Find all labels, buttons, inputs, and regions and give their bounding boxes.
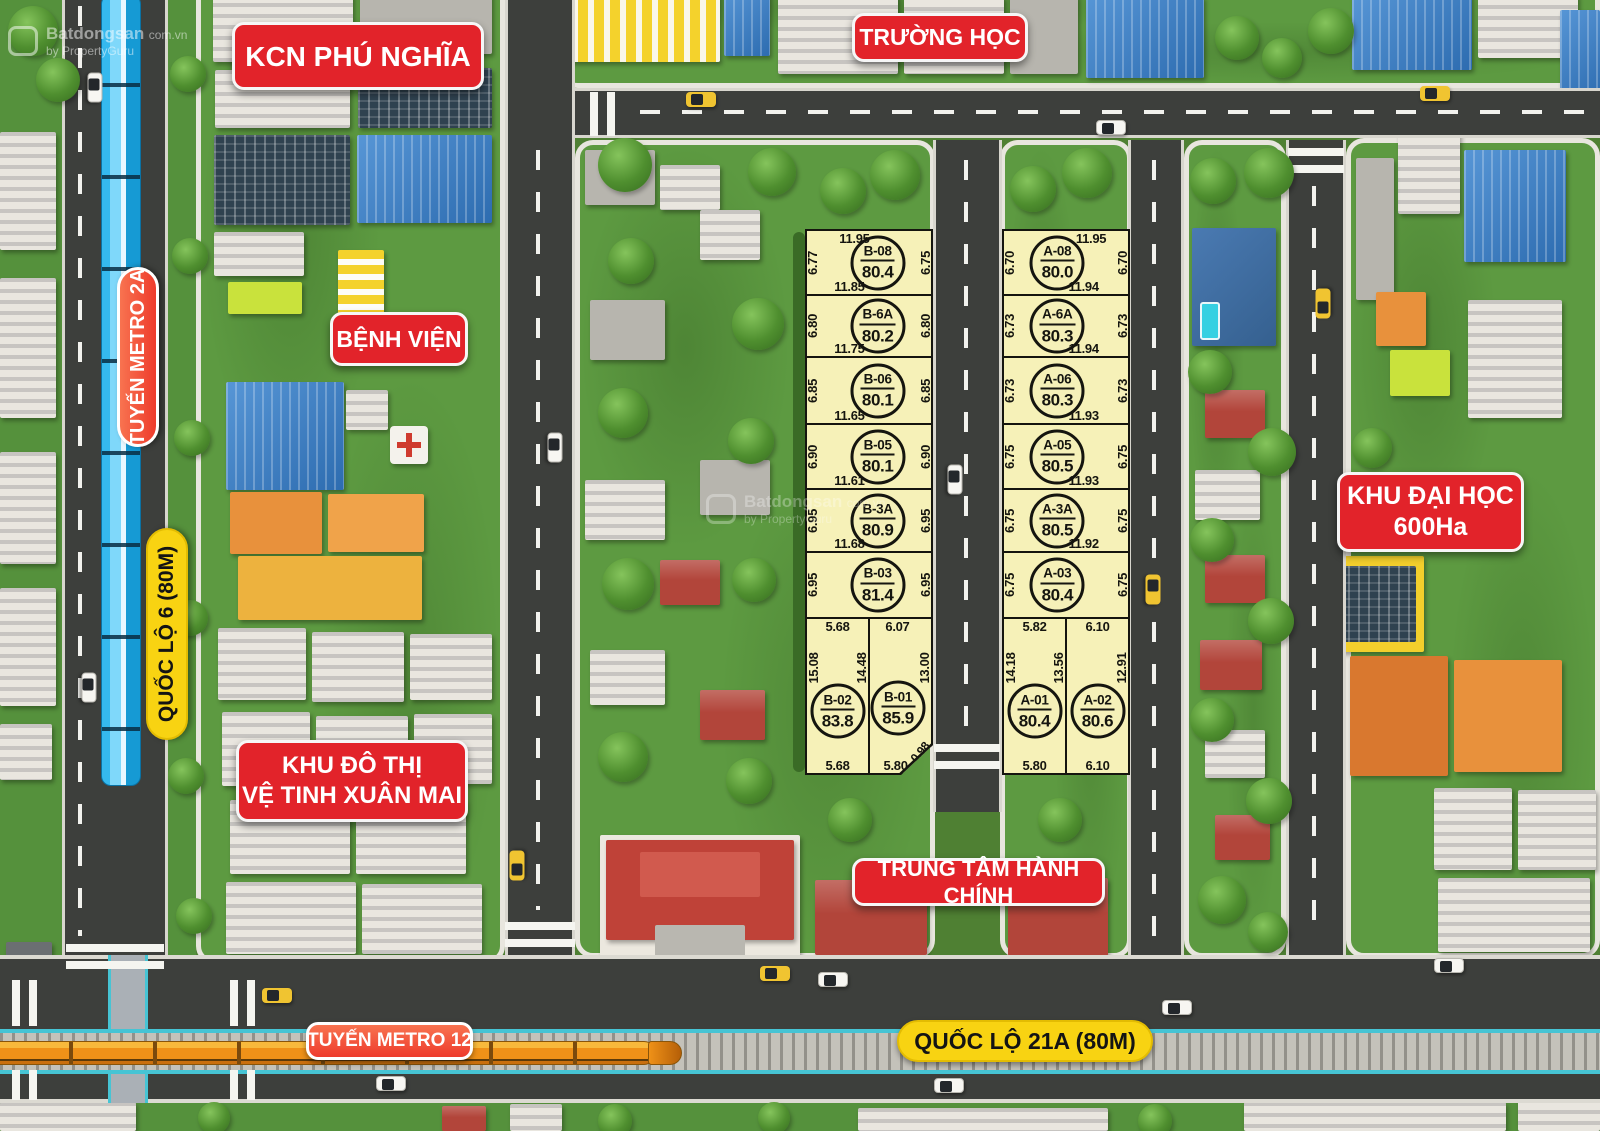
dim-right: 6.70	[1116, 250, 1129, 274]
lane-dash	[640, 110, 1590, 114]
tree	[758, 1102, 790, 1131]
building	[1468, 300, 1562, 418]
dim-right: 6.85	[919, 378, 932, 402]
apartment-tower	[312, 632, 404, 702]
watermark: Batdongsan com.vn by PropertyGuru	[8, 24, 187, 59]
label-truong-hoc: TRƯỜNG HỌC	[852, 13, 1028, 62]
tree	[1062, 148, 1112, 198]
dim-left: 6.73	[1003, 378, 1016, 402]
road-west-vertical	[505, 0, 575, 958]
tree	[870, 150, 920, 200]
plot-area: 80.4	[1042, 584, 1074, 603]
crosswalk	[590, 92, 616, 136]
building	[214, 232, 304, 276]
dim-bottom: 11.92	[1068, 537, 1098, 550]
plot-area: 80.0	[1042, 262, 1074, 281]
dim-bottom: 6.10	[1085, 759, 1109, 772]
label-text: QUỐC LỘ 6 (80M)	[155, 546, 179, 722]
tree	[1138, 1104, 1172, 1131]
building	[562, 0, 720, 62]
tree	[820, 168, 866, 214]
dim-left: 6.77	[806, 250, 819, 274]
plot-code: A-01	[1017, 693, 1051, 711]
crosswalk	[505, 922, 575, 952]
dim-bottom: 11.93	[1068, 409, 1098, 422]
plot-badge: A-03 80.4	[1030, 558, 1085, 613]
tree	[168, 758, 204, 794]
lane-dash	[78, 6, 82, 936]
building	[724, 0, 770, 56]
dim-top: 11.95	[1076, 232, 1106, 245]
label-quoc-lo-21a: QUỐC LỘ 21A (80M)	[897, 1020, 1153, 1062]
apartment-tower	[226, 882, 356, 954]
label-khu-dai-hoc: KHU ĐẠI HỌC 600Ha	[1337, 472, 1524, 552]
villa	[585, 480, 665, 540]
apartment-tower	[410, 634, 492, 700]
dim-bottom: 11.65	[834, 409, 864, 422]
car-icon	[1096, 120, 1126, 135]
plot-code: B-03	[861, 567, 895, 585]
dim-left: 6.75	[1003, 573, 1016, 597]
building	[0, 452, 56, 564]
dim-right: 6.95	[919, 573, 932, 597]
building	[0, 132, 56, 250]
villa	[1205, 390, 1265, 438]
tree	[1198, 876, 1246, 924]
dim-bottom: 11.94	[1068, 342, 1098, 355]
tree	[1248, 428, 1296, 476]
tree	[36, 58, 80, 102]
plot-b-06: 6.85 6.85 11.65 B-06 80.1	[807, 358, 931, 425]
plot-code: A-3A	[1039, 502, 1075, 520]
dim-bottom: 11.75	[834, 342, 864, 355]
tree	[1010, 166, 1056, 212]
villa	[1205, 555, 1265, 603]
tree	[1352, 428, 1392, 468]
tree	[1038, 798, 1082, 842]
tree	[1308, 8, 1354, 54]
plot-a-bottom-row: 5.82 14.18 13.56 5.80 A-01 80.4 6.10 12.…	[1004, 619, 1128, 773]
plot-badge: B-01 85.9	[871, 681, 926, 736]
tree	[828, 798, 872, 842]
tree	[732, 558, 776, 602]
dim-right: 6.90	[919, 444, 932, 468]
plot-a-6a: 6.73 6.73 11.94 A-6A 80.3	[1004, 296, 1128, 358]
label-text: TRƯỜNG HỌC	[859, 23, 1020, 52]
tree	[1190, 698, 1234, 742]
villa	[1200, 640, 1262, 690]
label-text: QUỐC LỘ 21A (80M)	[914, 1028, 1136, 1055]
dim-left: 6.75	[1003, 508, 1016, 532]
villa	[700, 210, 760, 260]
plot-a-08: 11.95 6.70 6.70 11.94 A-08 80.0	[1004, 231, 1128, 296]
tree	[602, 558, 654, 610]
watermark-byline: by PropertyGuru	[744, 512, 885, 526]
villa	[660, 165, 720, 210]
building	[230, 492, 322, 554]
dim-bottom: 11.93	[1068, 474, 1098, 487]
dim-bottom: 11.94	[1068, 280, 1098, 293]
tree	[1248, 598, 1294, 644]
car-icon	[82, 673, 97, 703]
plot-a-06: 6.73 6.73 11.93 A-06 80.3	[1004, 358, 1128, 425]
crosswalk	[12, 1070, 40, 1100]
plot-code: A-02	[1080, 693, 1114, 711]
tree	[198, 1102, 230, 1131]
tree	[598, 138, 652, 192]
car-icon	[686, 92, 716, 107]
tree	[1188, 350, 1232, 394]
label-text: KHU ĐẠI HỌC	[1347, 481, 1514, 512]
tree	[598, 388, 648, 438]
plot-area: 85.9	[882, 708, 914, 727]
label-text: TUYẾN METRO 2A	[127, 269, 150, 446]
tree	[1248, 912, 1288, 952]
watermark-domain: com.vn	[149, 28, 188, 42]
apartment-tower	[1518, 790, 1596, 870]
plot-a-02: 6.10 12.91 6.10 A-02 80.6	[1067, 619, 1128, 773]
tree	[1190, 518, 1234, 562]
car-icon	[818, 972, 848, 987]
building	[1560, 10, 1600, 100]
plot-code: B-02	[820, 693, 854, 711]
road-east-2	[1286, 140, 1346, 958]
car-icon	[262, 988, 292, 1003]
tree	[174, 420, 210, 456]
villa	[590, 650, 665, 705]
villa	[660, 560, 720, 605]
lane-dash	[964, 160, 968, 726]
car-icon	[510, 851, 525, 881]
dim-bottom: 11.85	[834, 280, 864, 293]
plot-area: 80.4	[1019, 711, 1051, 730]
label-tuyen-metro-12: TUYẾN METRO 12	[306, 1022, 473, 1060]
crosswalk	[12, 980, 40, 1026]
building	[1350, 656, 1448, 776]
masterplan-map: 11.95 6.77 6.75 11.85 B-08 80.4 6.80 6.8…	[0, 0, 1600, 1131]
dim-left: 6.70	[1003, 250, 1016, 274]
label-text: KCN PHÚ NGHĨA	[245, 39, 471, 74]
label-quoc-lo-6: QUỐC LỘ 6 (80M)	[146, 528, 188, 740]
label-kcn-phu-nghia: KCN PHÚ NGHĨA	[232, 22, 484, 90]
plot-a-01: 5.82 14.18 13.56 5.80 A-01 80.4	[1004, 619, 1067, 773]
villa	[1195, 470, 1260, 520]
watermark-domain: com.vn	[847, 496, 886, 510]
crosswalk	[230, 1070, 258, 1100]
villa	[590, 300, 665, 360]
dim-right: 14.48	[855, 653, 868, 684]
dim-right: 6.73	[1116, 314, 1129, 338]
building-solar-roof	[1338, 566, 1416, 642]
plot-area: 80.3	[1042, 390, 1074, 409]
label-text: TRUNG TÂM HÀNH CHÍNH	[855, 855, 1102, 910]
dim-top: 11.95	[839, 232, 869, 245]
plot-code: B-08	[861, 244, 895, 262]
dim-left: 14.18	[1004, 653, 1017, 684]
tree	[170, 56, 206, 92]
building	[1244, 1102, 1506, 1131]
plot-b-05: 6.90 6.90 11.61 B-05 80.1	[807, 425, 931, 490]
building	[1390, 350, 1450, 396]
crosswalk	[66, 944, 164, 974]
tree	[1246, 778, 1292, 824]
car-icon	[1316, 289, 1331, 319]
plot-a-3a: 6.75 6.75 11.92 A-3A 80.5	[1004, 490, 1128, 553]
tree	[732, 298, 784, 350]
plot-code: A-06	[1040, 372, 1074, 390]
road-east-1	[1128, 140, 1184, 958]
tree	[172, 238, 208, 274]
building	[357, 135, 492, 223]
building	[1356, 158, 1394, 300]
dim-left: 6.80	[806, 314, 819, 338]
dim-bottom: 5.68	[825, 759, 849, 772]
apartment-tower	[1438, 878, 1590, 952]
building	[346, 390, 388, 430]
tree	[1244, 148, 1294, 198]
watermark-brand: Batdongsan	[744, 492, 842, 511]
dim-bottom: 11.68	[834, 537, 864, 550]
building	[1454, 660, 1562, 772]
tree	[608, 238, 654, 284]
label-text: TUYẾN METRO 12	[307, 1030, 472, 1052]
watermark-byline: by PropertyGuru	[46, 44, 187, 58]
plot-area: 80.6	[1082, 711, 1114, 730]
dim-left: 6.75	[1003, 444, 1016, 468]
plot-area: 80.1	[862, 456, 894, 475]
building	[1464, 150, 1566, 262]
building	[1086, 0, 1204, 78]
hospital-building	[226, 382, 344, 490]
pool	[1200, 302, 1220, 340]
lane-dash	[536, 150, 540, 910]
plot-b-02: 5.68 15.08 14.48 5.68 B-02 83.8	[807, 619, 870, 773]
car-icon	[1434, 958, 1464, 973]
building	[0, 588, 56, 706]
plot-code: B-01	[881, 690, 915, 708]
plot-code: A-03	[1040, 567, 1074, 585]
apartment-tower	[218, 628, 306, 700]
building	[510, 1104, 562, 1131]
building	[228, 282, 302, 314]
plot-code: B-6A	[860, 308, 896, 326]
plot-b-03: 6.95 6.95 B-03 81.4	[807, 553, 931, 619]
dim-right: 6.73	[1116, 378, 1129, 402]
dim-right: 6.75	[1116, 444, 1129, 468]
plot-b-01: 6.07 13.00 5.80 0.98 B-01 85.9	[870, 619, 931, 773]
plot-b-08: 11.95 6.77 6.75 11.85 B-08 80.4	[807, 231, 931, 296]
tree	[1215, 16, 1259, 60]
building	[0, 278, 56, 418]
dim-right: 6.95	[919, 508, 932, 532]
plot-badge: A-02 80.6	[1070, 684, 1125, 739]
dim-left: 6.90	[806, 444, 819, 468]
tree	[176, 898, 212, 934]
building	[442, 1106, 486, 1131]
car-icon	[376, 1076, 406, 1091]
dim-left: 6.85	[806, 378, 819, 402]
building	[0, 724, 52, 780]
plot-code: B-06	[861, 372, 895, 390]
dim-right: 12.91	[1115, 653, 1128, 684]
plot-badge: B-02 83.8	[810, 684, 865, 739]
dim-bottom: 5.80	[1022, 759, 1046, 772]
dim-top: 6.10	[1085, 620, 1109, 633]
plot-a-03: 6.75 6.75 A-03 80.4	[1004, 553, 1128, 619]
building	[0, 1102, 136, 1131]
car-icon	[948, 465, 963, 495]
crosswalk	[1288, 148, 1344, 178]
tree	[728, 418, 774, 464]
watermark-logo-icon	[706, 494, 736, 524]
plot-table-a: 11.95 6.70 6.70 11.94 A-08 80.0 6.73 6.7…	[1002, 229, 1130, 775]
plot-b-bottom-row: 5.68 15.08 14.48 5.68 B-02 83.8 6.07 13.…	[807, 619, 931, 773]
dim-top: 5.82	[1022, 620, 1046, 633]
label-text: BỆNH VIỆN	[336, 325, 461, 354]
plot-area: 81.4	[862, 584, 894, 603]
label-text: 600Ha	[1394, 512, 1468, 543]
admin-building-ridge	[640, 852, 760, 897]
label-trung-tam-hanh-chinh: TRUNG TÂM HÀNH CHÍNH	[852, 858, 1105, 906]
plot-area: 80.4	[862, 262, 894, 281]
tree	[1262, 38, 1302, 78]
tree	[748, 148, 796, 196]
label-text: KHU ĐÔ THỊ	[282, 751, 422, 781]
building	[1376, 292, 1426, 346]
apartment-tower	[362, 884, 482, 954]
plot-area: 80.1	[862, 390, 894, 409]
lane-dash	[1152, 160, 1156, 940]
car-icon	[934, 1078, 964, 1093]
watermark: Batdongsan com.vn by PropertyGuru	[706, 492, 885, 527]
dim-right: 6.75	[1116, 573, 1129, 597]
plot-area: 80.2	[862, 325, 894, 344]
building	[858, 1108, 1108, 1131]
crosswalk	[230, 980, 258, 1026]
car-icon	[1146, 575, 1161, 605]
plot-badge: A-01 80.4	[1007, 684, 1062, 739]
villa	[700, 690, 765, 740]
car-icon	[548, 433, 563, 463]
dim-bottom: 11.61	[834, 474, 864, 487]
tree	[726, 758, 772, 804]
tree	[598, 1104, 632, 1131]
dim-left: 15.08	[807, 653, 820, 684]
label-text: VỆ TINH XUÂN MAI	[242, 781, 462, 811]
hospital-cross-icon	[390, 426, 428, 464]
label-tuyen-metro-2a: TUYẾN METRO 2A	[117, 267, 159, 447]
plot-area: 83.8	[822, 711, 854, 730]
building	[328, 494, 424, 552]
building	[1352, 0, 1472, 70]
car-icon	[1162, 1000, 1192, 1015]
plot-code: A-08	[1040, 244, 1074, 262]
strip-left-green	[168, 0, 196, 957]
plot-a-05: 6.75 6.75 11.93 A-05 80.5	[1004, 425, 1128, 490]
dim-left: 6.95	[806, 573, 819, 597]
dim-right: 13.00	[918, 653, 931, 684]
dim-left: 6.73	[1003, 314, 1016, 338]
car-icon	[88, 73, 103, 103]
plot-code: B-05	[861, 438, 895, 456]
admin-plaza	[655, 925, 745, 957]
dim-top: 6.07	[885, 620, 909, 633]
dim-top: 5.68	[825, 620, 849, 633]
building	[238, 556, 422, 620]
metro-12-train-nose-icon	[648, 1041, 682, 1065]
plot-code: A-6A	[1039, 308, 1075, 326]
watermark-brand: Batdongsan	[46, 24, 144, 43]
car-icon	[760, 966, 790, 981]
plot-area: 80.5	[1042, 456, 1074, 475]
dim-right: 6.75	[919, 250, 932, 274]
plot-badge: B-03 81.4	[850, 558, 905, 613]
tree	[1190, 158, 1236, 204]
car-icon	[1420, 86, 1450, 101]
plot-b-6a: 6.80 6.80 11.75 B-6A 80.2	[807, 296, 931, 358]
dim-right: 6.80	[919, 314, 932, 338]
dim-right: 13.56	[1052, 653, 1065, 684]
tree	[598, 732, 648, 782]
watermark-logo-icon	[8, 26, 38, 56]
building-solar-roof	[214, 135, 350, 225]
plot-code: A-05	[1040, 438, 1074, 456]
dim-right: 6.75	[1116, 508, 1129, 532]
label-benh-vien: BỆNH VIỆN	[330, 312, 468, 366]
crosswalk	[934, 744, 1000, 774]
apartment-tower	[1434, 788, 1512, 870]
label-khu-do-thi: KHU ĐÔ THỊ VỆ TINH XUÂN MAI	[236, 740, 468, 822]
